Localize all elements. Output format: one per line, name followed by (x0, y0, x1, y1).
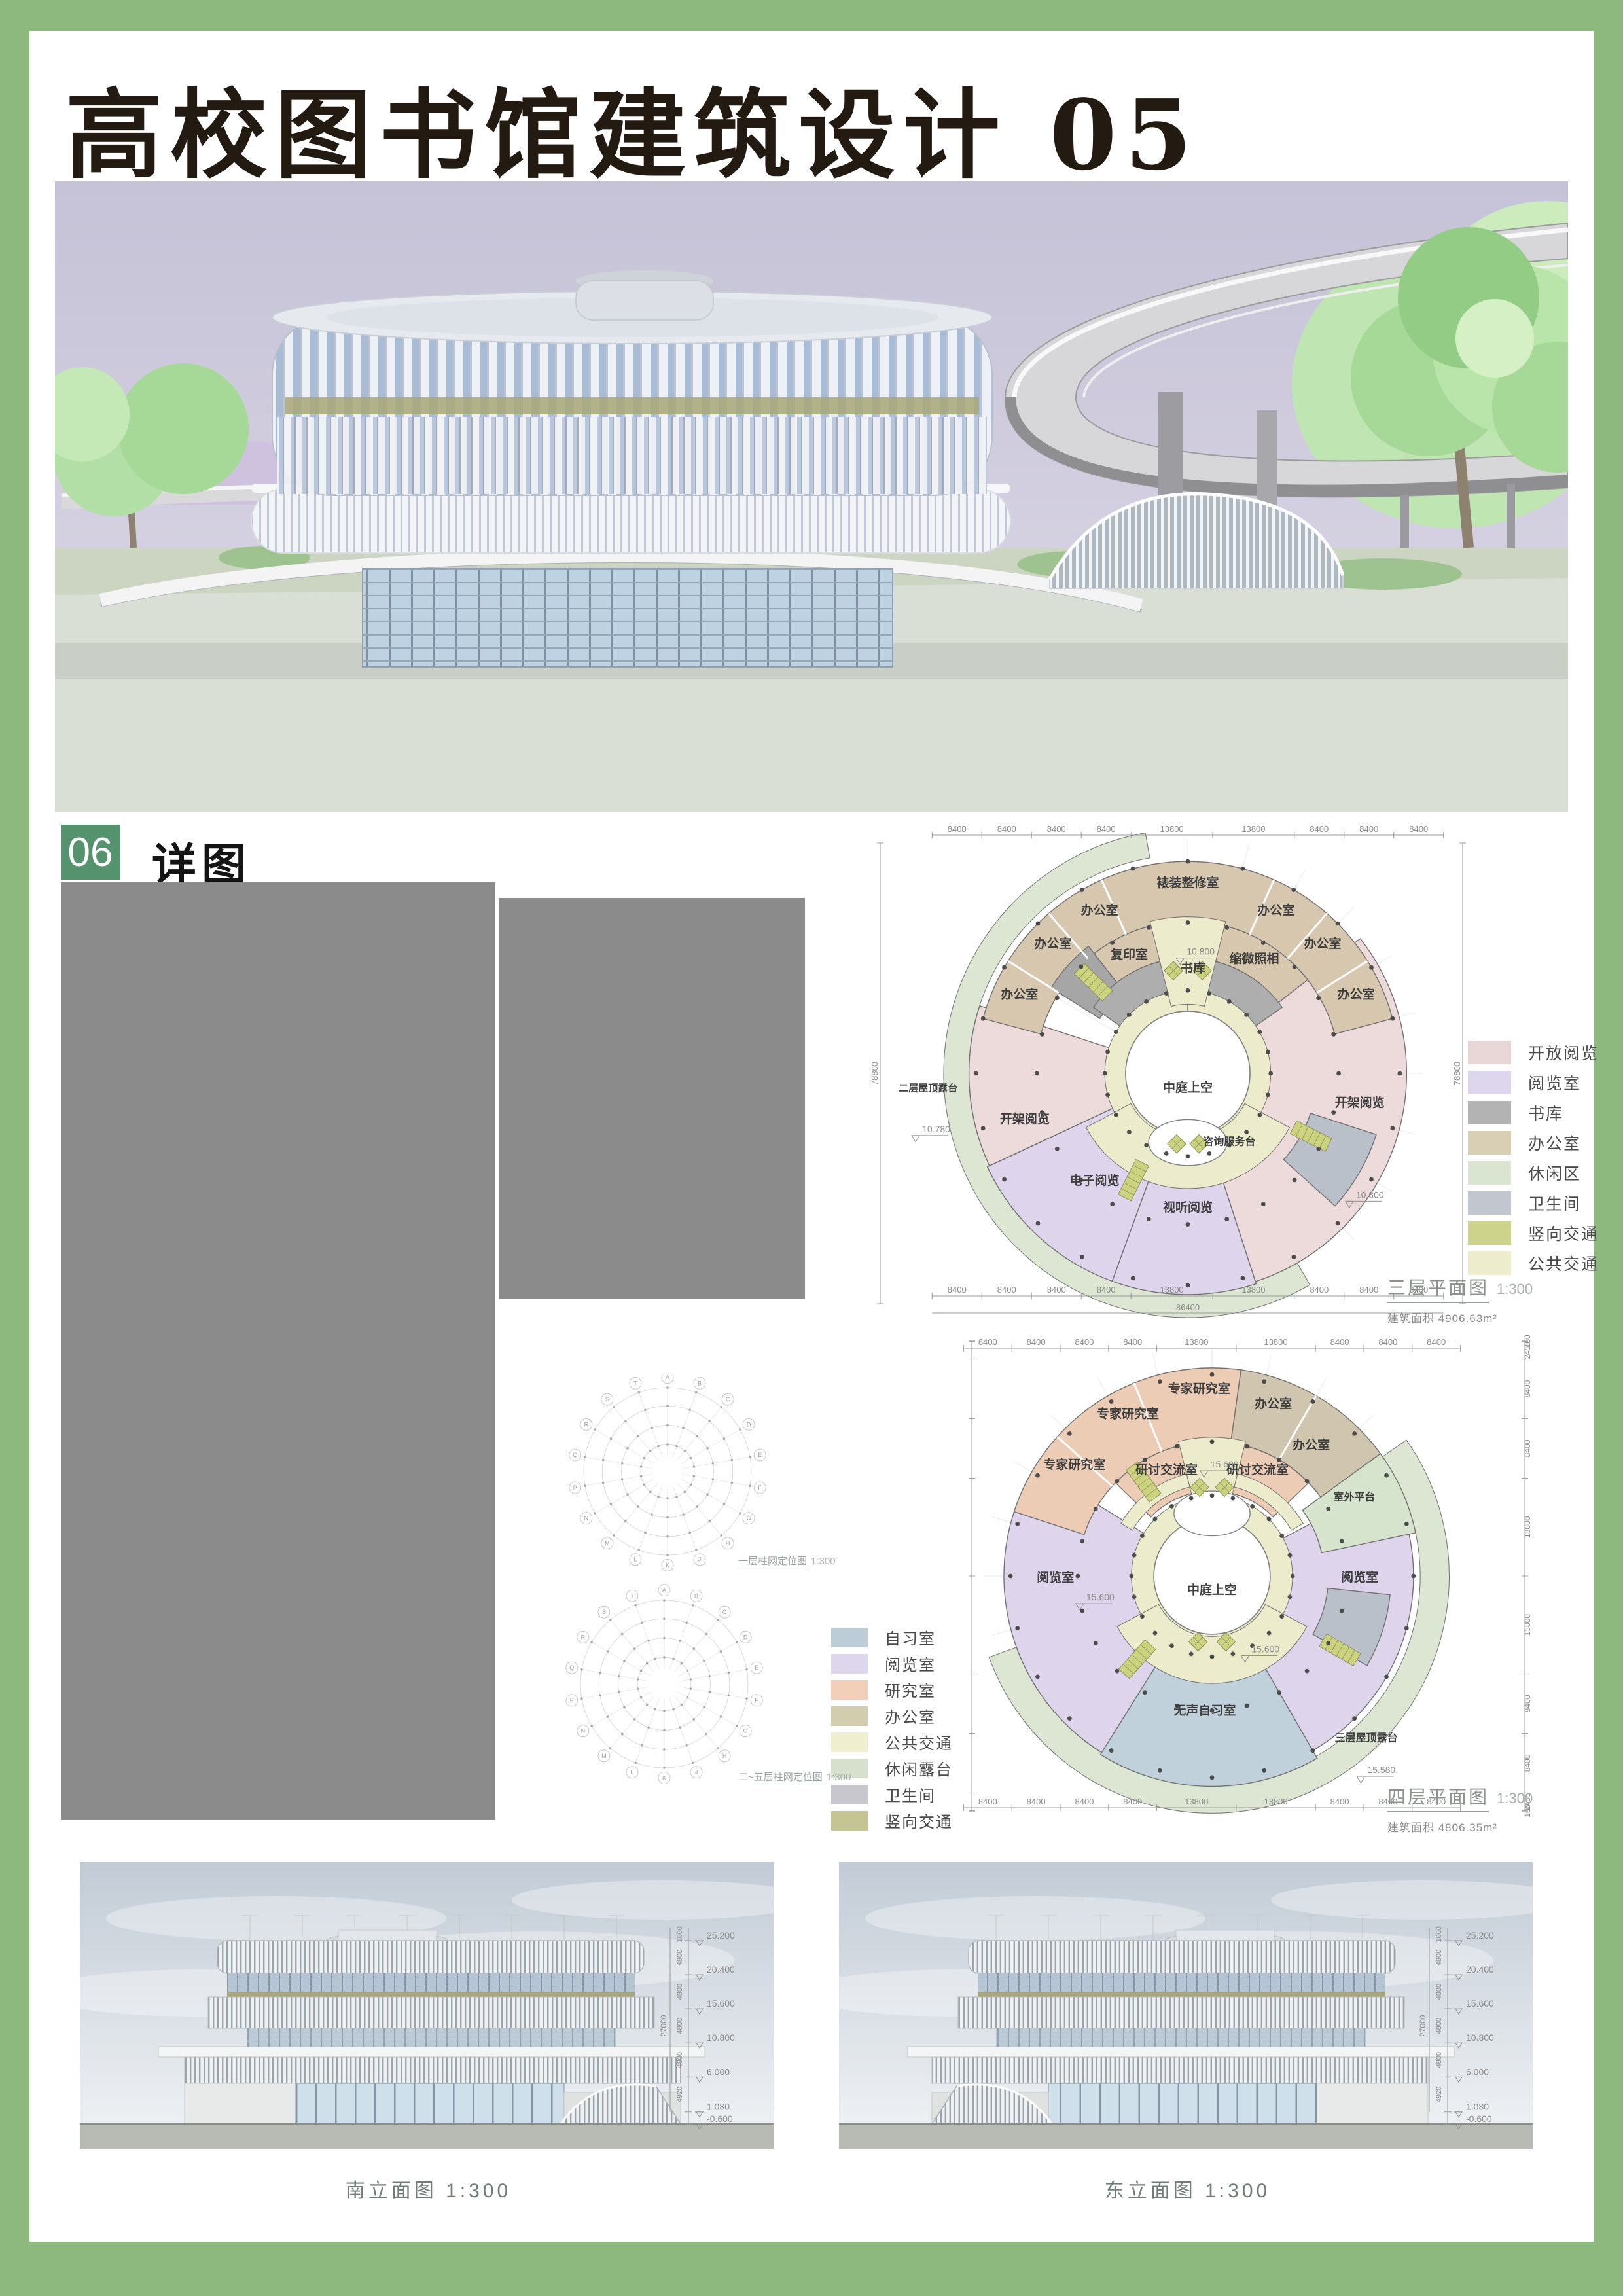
dim-label: 8400 (948, 824, 967, 834)
elevation-level: 10.800 (707, 2032, 735, 2043)
dim-label: 8400 (1330, 1337, 1349, 1347)
grid-axis-letter: T (630, 1592, 634, 1599)
legend-item: 研究室 (831, 1678, 953, 1701)
room-label: 中庭上空 (1163, 1080, 1213, 1095)
dim-label: 8400 (1523, 1380, 1532, 1397)
grid-axis-letter: M (601, 1753, 607, 1759)
grid-axis-letter: Q (573, 1452, 577, 1458)
elevation-seg-dim: 4800 (676, 1984, 684, 2000)
dim-total: 78800 (1452, 1062, 1462, 1085)
legend-plan-4f: 自习室阅览室研究室办公室公共交通休闲露台卫生间竖向交通 (831, 1626, 953, 1835)
dim-label: 8400 (978, 1337, 997, 1347)
dim-label: 8400 (1027, 1337, 1046, 1347)
room-label: 办公室 (1255, 1396, 1292, 1411)
elevation-level: 1.080 (1466, 2102, 1489, 2112)
legend-swatch (1468, 1041, 1511, 1064)
grid-axis-letter: P (570, 1697, 574, 1704)
room-label: 办公室 (1338, 986, 1375, 1001)
grid-axis-letter: A (662, 1587, 666, 1594)
legend-item: 竖向交通 (1468, 1221, 1599, 1245)
level-text: 15.600 (1251, 1643, 1279, 1654)
grid-diagram-2-caption: 二~五层柱网定位图1:300 (738, 1770, 851, 1784)
legend-swatch (831, 1654, 868, 1674)
grid-axis-letter: E (755, 1664, 758, 1671)
dim-label: 13800 (1185, 1337, 1208, 1347)
legend-item: 公共交通 (1468, 1251, 1599, 1275)
dim-label: 2455 (1523, 1342, 1532, 1359)
legend-label: 开放阅览 (1528, 1041, 1599, 1064)
legend-item: 休闲区 (1468, 1161, 1599, 1185)
level-text: 15.600 (1086, 1592, 1115, 1602)
legend-label: 公共交通 (1528, 1251, 1599, 1275)
grid-axis-letter: B (694, 1592, 698, 1599)
legend-item: 办公室 (1468, 1131, 1599, 1155)
legend-swatch (831, 1680, 868, 1700)
elevation-south: 25.20020.40015.60010.8006.0001.080-0.600… (80, 1862, 777, 2163)
dim-label: 8400 (978, 1797, 997, 1806)
elevation-level: 15.600 (1466, 1998, 1494, 2009)
elevation-seg-dim: 4920 (676, 2087, 684, 2102)
elevation-level: 20.400 (707, 1964, 735, 1975)
dim-total: 86400 (1176, 1302, 1200, 1312)
room-label: 办公室 (1035, 936, 1072, 951)
grid-axis-letter: H (722, 1753, 727, 1759)
grid-axis-letter: R (584, 1421, 589, 1427)
plan-4f-area: 建筑面积 4806.35m² (1387, 1818, 1533, 1835)
level-text: 10.800 (1186, 946, 1215, 957)
legend-swatch (831, 1628, 868, 1647)
room-label: 办公室 (1001, 986, 1038, 1001)
room-label: 裱装整修室 (1156, 875, 1219, 890)
grid-axis-letter: C (726, 1396, 730, 1403)
elevation-seg-dim: 4800 (1435, 1984, 1443, 2000)
elevation-seg-dim: 1800 (1435, 1926, 1443, 1942)
elevation-east-caption: 东立面图 1:300 (839, 2174, 1536, 2203)
dim-label: 8400 (1359, 1285, 1378, 1295)
dim-label: 8400 (1523, 1439, 1532, 1457)
legend-label: 阅览室 (1528, 1071, 1581, 1094)
grid-axis-letter: M (605, 1540, 610, 1547)
dim-label: 8400 (1523, 1695, 1532, 1712)
dim-label: 13800 (1264, 1337, 1287, 1347)
grid-axis-letter: F (758, 1484, 762, 1491)
elevation-level: 6.000 (707, 2066, 730, 2077)
legend-label: 公共交通 (885, 1731, 953, 1753)
grid-axis-letter: R (581, 1634, 586, 1640)
elevation-building (158, 1916, 705, 2124)
legend-item: 阅览室 (831, 1652, 953, 1675)
legend-swatch (1468, 1251, 1511, 1275)
room-label: 无声自习室 (1173, 1703, 1236, 1718)
level-text: 15.600 (1211, 1459, 1239, 1469)
level-text: 15.580 (1367, 1765, 1395, 1775)
grid-axis-letter: N (581, 1728, 586, 1734)
dim-label: 8400 (1523, 1754, 1532, 1772)
room-label: 中庭上空 (1187, 1582, 1237, 1597)
room-label: 视听阅览 (1163, 1200, 1213, 1215)
dim-label: 8400 (1097, 1285, 1116, 1295)
dim-label: 8400 (1075, 1337, 1094, 1347)
elevation-level: 20.400 (1466, 1964, 1494, 1975)
elevation-seg-dim: 4800 (676, 1950, 684, 1965)
elevation-level: 1.080 (707, 2102, 730, 2112)
plan-3f-scale: 1:300 (1497, 1281, 1533, 1297)
elevation-level: 6.000 (1466, 2066, 1489, 2077)
room-label: 研讨交流室 (1135, 1462, 1198, 1477)
board-title: 高校图书馆建筑设计 05 (65, 56, 1200, 197)
section-number-badge: 06 (61, 825, 120, 880)
dim-label: 13800 (1523, 1516, 1532, 1538)
floor-plan-3f: 办公室办公室办公室裱装整修室办公室办公室办公室复印室缩微照相书库开架阅览开架阅览… (861, 818, 1535, 1321)
grid-axis-letter: E (758, 1452, 762, 1458)
dim-label: 8400 (1047, 1285, 1066, 1295)
grid-axis-letter: B (698, 1380, 702, 1386)
grid-axis-letter: T (633, 1380, 637, 1386)
dim-label: 13800 (1241, 1285, 1265, 1295)
atrium (1126, 1011, 1250, 1136)
legend-label: 办公室 (1528, 1131, 1581, 1155)
legend-item: 阅览室 (1468, 1071, 1599, 1094)
elevation-seg-dim: 4920 (1435, 2087, 1443, 2102)
room-label: 电子阅览 (1069, 1173, 1119, 1188)
plan-3f-area: 建筑面积 4906.63m² (1387, 1309, 1533, 1325)
elevation-seg-dim: 4800 (1435, 2018, 1443, 2034)
legend-item: 公共交通 (831, 1731, 953, 1753)
room-label: 办公室 (1081, 903, 1118, 918)
elevation-level: -0.600 (1466, 2113, 1492, 2124)
plan-4f-title-block: 四层平面图1:300 建筑面积 4806.35m² (1387, 1783, 1533, 1835)
legend-label: 竖向交通 (885, 1809, 953, 1832)
legend-item: 办公室 (831, 1704, 953, 1727)
grid-axis-letter: L (633, 1556, 637, 1563)
legend-item: 卫生间 (831, 1783, 953, 1806)
grid-axis-letter: D (747, 1421, 751, 1427)
grid-axis-letter: N (584, 1515, 589, 1522)
floor-plan-4f: 专家研究室专家研究室专家研究室办公室办公室研讨交流室研讨交流室室外平台阅览室阅览… (933, 1335, 1607, 1833)
dim-label: 8400 (1097, 824, 1116, 834)
elevation-level: 25.200 (707, 1930, 735, 1941)
grid-axis-letter: J (698, 1556, 702, 1563)
legend-item: 卫生间 (1468, 1191, 1599, 1215)
column-grid-diagram-1: ABCDEFGHJKLMNPQRST (563, 1374, 779, 1571)
dim-label: 13800 (1160, 824, 1184, 834)
room-label: 二层屋顶露台 (899, 1083, 957, 1094)
dim-label: 8400 (1123, 1797, 1142, 1806)
dim-label: 13800 (1160, 1285, 1184, 1295)
column-grid-diagram-2: ABCDEFGHJKLMNPQRST (560, 1581, 776, 1784)
legend-swatch (1468, 1221, 1511, 1245)
dim-label: 8400 (1359, 824, 1378, 834)
placeholder-image-large (61, 882, 495, 1820)
grid-axis-letter: L (630, 1769, 633, 1776)
grid-axis-letter: G (743, 1728, 748, 1734)
elevation-total-dim: 27000 (659, 2015, 668, 2037)
dim-label: 8400 (1409, 824, 1428, 834)
legend-label: 卫生间 (1528, 1191, 1581, 1215)
elevation-building (908, 1916, 1454, 2124)
legend-swatch (831, 1785, 868, 1804)
legend-label: 竖向交通 (1528, 1221, 1599, 1245)
elevation-level: 10.800 (1466, 2032, 1494, 2043)
room-label: 办公室 (1293, 1437, 1330, 1452)
legend-swatch (831, 1706, 868, 1726)
elevation-seg-dim: 1800 (676, 1926, 684, 1942)
dim-label: 13800 (1264, 1797, 1287, 1806)
room-label: 专家研究室 (1097, 1406, 1159, 1421)
room-label: 三层屋顶露台 (1335, 1732, 1398, 1744)
grid-axis-letter: S (605, 1396, 609, 1403)
room-label: 阅览室 (1037, 1570, 1074, 1585)
dim-label: 8400 (1075, 1797, 1094, 1806)
legend-label: 书库 (1528, 1101, 1563, 1124)
grid-axis-letter: S (602, 1609, 606, 1615)
dim-label: 8400 (1027, 1797, 1046, 1806)
room-label: 开架阅览 (1335, 1095, 1385, 1110)
legend-label: 自习室 (885, 1626, 936, 1649)
dim-label: 8400 (1123, 1337, 1142, 1347)
elevation-ground (80, 2124, 774, 2149)
legend-swatch (1468, 1131, 1511, 1155)
legend-item: 开放阅览 (1468, 1041, 1599, 1064)
grid-diagram-1-caption: 一层柱网定位图1:300 (738, 1554, 836, 1568)
legend-swatch (1468, 1161, 1511, 1185)
grid-axis-letter: A (666, 1374, 669, 1381)
elevation-level: -0.600 (707, 2113, 733, 2124)
dim-label: 8400 (1378, 1337, 1397, 1347)
grid-axis-letter: D (743, 1634, 748, 1640)
elevation-east: 25.20020.40015.60010.8006.0001.080-0.600… (839, 1862, 1536, 2163)
legend-label: 休闲区 (1528, 1161, 1581, 1185)
dim-label: 8400 (1427, 1337, 1446, 1347)
grid-axis-letter: K (666, 1562, 669, 1568)
legend-label: 休闲露台 (885, 1757, 953, 1780)
legend-item: 书库 (1468, 1101, 1599, 1124)
elevation-ground (839, 2124, 1533, 2149)
legend-swatch (1468, 1191, 1511, 1215)
grid-axis-letter: H (726, 1540, 730, 1547)
legend-label: 卫生间 (885, 1783, 936, 1806)
dim-label: 8400 (1330, 1797, 1349, 1806)
plan-4f-title: 四层平面图 (1387, 1783, 1489, 1812)
elevation-seg-dim: 4800 (676, 2018, 684, 2034)
level-marker: 10.780 (912, 1124, 950, 1142)
legend-item: 竖向交通 (831, 1809, 953, 1832)
elevation-level: 15.600 (707, 1998, 735, 2009)
placeholder-image-small (499, 898, 805, 1299)
room-label: 专家研究室 (1043, 1457, 1105, 1472)
room-label: 办公室 (1257, 903, 1294, 918)
grid-axis-letter: P (573, 1484, 577, 1491)
dim-total: 78800 (870, 1062, 880, 1085)
legend-plan-3f: 开放阅览阅览室书库办公室休闲区卫生间竖向交通公共交通 (1468, 1041, 1599, 1282)
legend-swatch (831, 1732, 868, 1752)
level-marker: 15.580 (1357, 1765, 1395, 1783)
grid-axis-letter: K (662, 1774, 666, 1781)
dim-label: 13800 (1523, 1614, 1532, 1636)
dim-label: 13800 (1185, 1797, 1208, 1806)
legend-swatch (1468, 1101, 1511, 1124)
dim-label: 8400 (1310, 1285, 1329, 1295)
room-label: 专家研究室 (1168, 1381, 1230, 1396)
room-label: 咨询服务台 (1203, 1136, 1255, 1148)
dim-label: 8400 (1047, 824, 1066, 834)
room-label: 办公室 (1304, 936, 1341, 951)
room-label: 书库 (1181, 960, 1205, 975)
level-text: 10.800 (1356, 1189, 1384, 1200)
grid-axis-letter: J (695, 1769, 698, 1776)
hero-rendering (55, 181, 1568, 812)
dim-label: 13800 (1241, 824, 1265, 834)
section-number: 06 (68, 829, 113, 876)
room-label: 阅览室 (1341, 1570, 1378, 1585)
dim-label: 8400 (997, 1285, 1016, 1295)
elevation-seg-dim: 4800 (1435, 2052, 1443, 2068)
room-label: 室外平台 (1333, 1490, 1375, 1503)
legend-item: 自习室 (831, 1626, 953, 1649)
elevation-total-dim: 27000 (1418, 2015, 1427, 2037)
dim-label: 8400 (997, 824, 1016, 834)
level-text: 10.780 (922, 1124, 950, 1134)
dim-label: 8400 (1310, 824, 1329, 834)
elevation-seg-dim: 4800 (1435, 1950, 1443, 1965)
legend-label: 研究室 (885, 1678, 936, 1701)
dim-label: 8400 (948, 1285, 967, 1295)
plan-4f-scale: 1:300 (1497, 1790, 1533, 1806)
room-label: 开架阅览 (1000, 1111, 1050, 1126)
grid-axis-letter: C (722, 1609, 727, 1615)
legend-swatch (1468, 1071, 1511, 1094)
elevation-level: 25.200 (1466, 1930, 1494, 1941)
room-label: 缩微照相 (1230, 951, 1279, 966)
legend-swatch (831, 1811, 868, 1831)
elevation-seg-dim: 4800 (676, 2052, 684, 2068)
grid-axis-letter: F (755, 1697, 758, 1704)
grid-axis-letter: Q (569, 1664, 574, 1671)
grid-axis-letter: G (747, 1515, 751, 1522)
room-label: 复印室 (1110, 946, 1148, 961)
elevation-south-caption: 南立面图 1:300 (80, 2174, 777, 2203)
legend-label: 办公室 (885, 1704, 936, 1727)
legend-label: 阅览室 (885, 1652, 936, 1675)
